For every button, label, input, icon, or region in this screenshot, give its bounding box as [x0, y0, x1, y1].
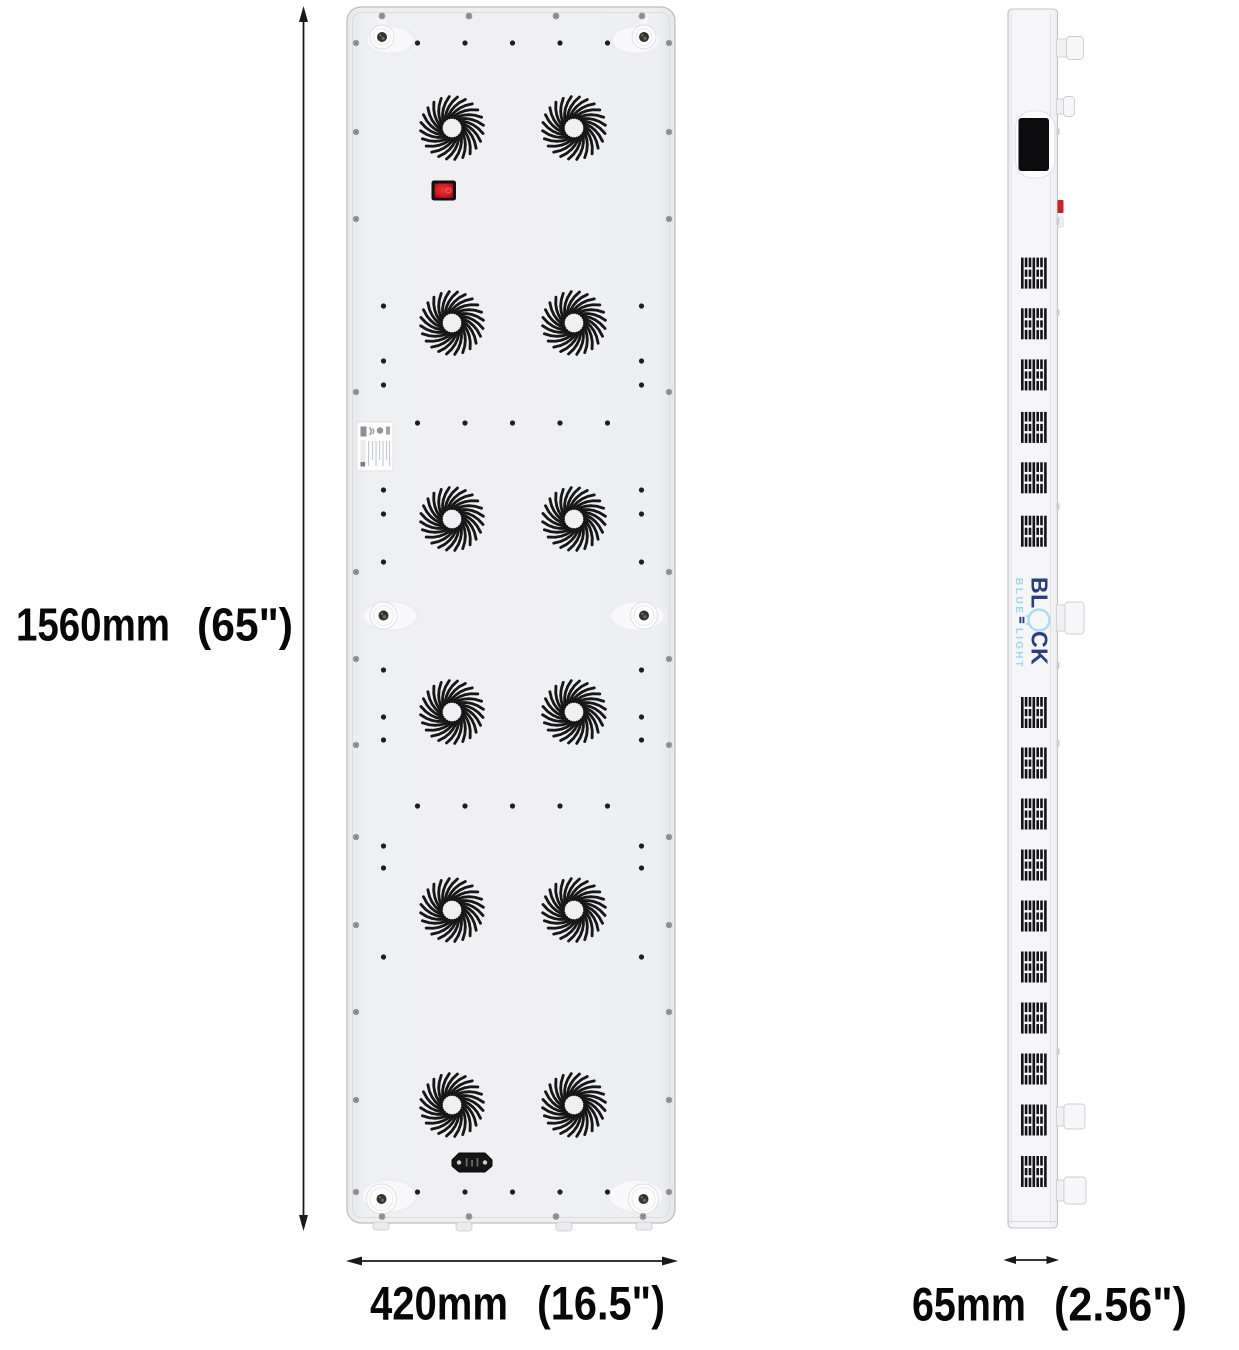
svg-text:BL: BL	[1027, 577, 1053, 609]
svg-text:CK: CK	[1027, 631, 1053, 665]
svg-text:LIGHT: LIGHT	[1013, 628, 1024, 669]
svg-text:(16.5"): (16.5")	[537, 1277, 665, 1330]
svg-text:(65"): (65")	[197, 599, 293, 651]
svg-text:65mm: 65mm	[912, 1278, 1026, 1331]
svg-text:BLUE: BLUE	[1013, 578, 1024, 616]
svg-text:420mm: 420mm	[370, 1277, 508, 1330]
svg-text:(2.56"): (2.56")	[1054, 1278, 1187, 1331]
svg-text:1560mm: 1560mm	[16, 599, 170, 651]
